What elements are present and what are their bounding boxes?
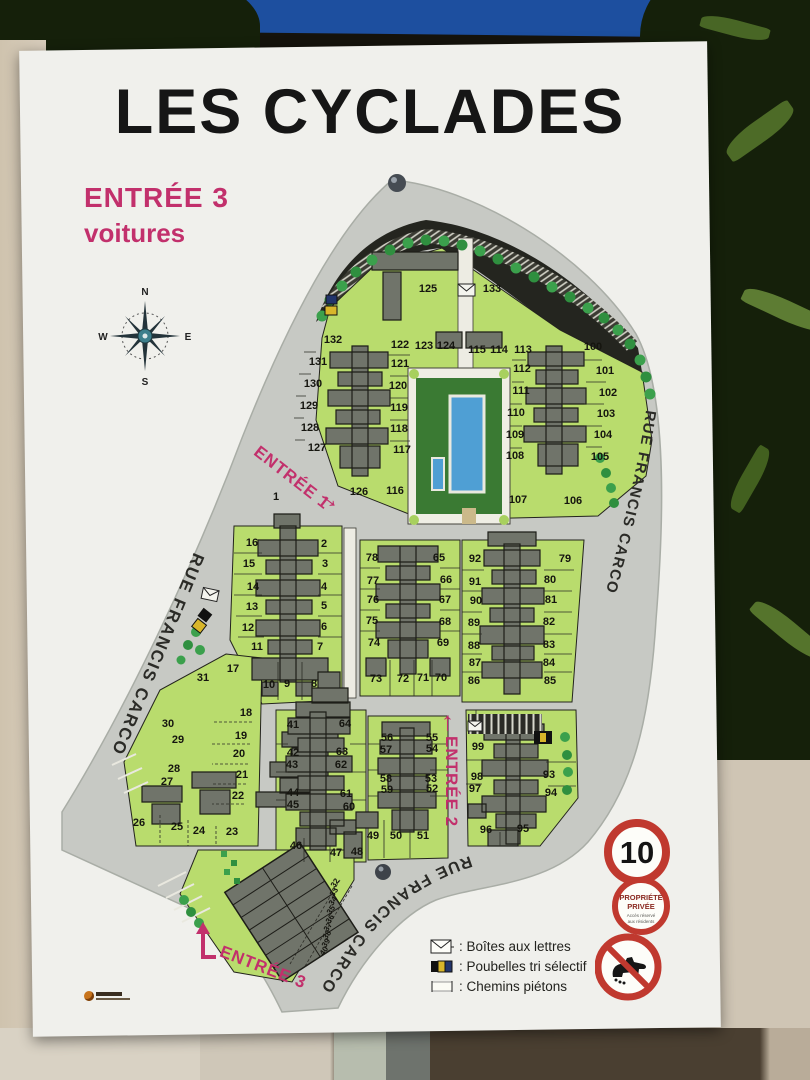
no-dog-fouling-sign: [598, 937, 658, 997]
plot-number: 75: [366, 615, 378, 627]
plot-number: 105: [591, 451, 609, 463]
plot-number: 120: [389, 380, 407, 392]
plot-number: 19: [235, 730, 247, 742]
plot-number: 51: [417, 830, 429, 842]
regulatory-signs: 10 PROPRIÉTÉ PRIVÉE Accès réservé aux ré…: [595, 815, 705, 1010]
plot-number: 9: [284, 678, 290, 690]
plot-number: 49: [367, 830, 379, 842]
legend-row-footpaths: : Chemins piétons: [430, 976, 587, 996]
plot-number: 122: [391, 339, 409, 351]
plot-number: 7: [317, 641, 323, 653]
plot-number: 24: [193, 825, 205, 837]
plot-number: 94: [545, 787, 557, 799]
plot-number: 128: [301, 422, 319, 434]
private-line1: PROPRIÉTÉ: [619, 893, 662, 902]
screw: [388, 174, 406, 192]
plot-number: 21: [236, 769, 248, 781]
plot-number: 61: [340, 788, 352, 800]
plot-number: 102: [599, 387, 617, 399]
plot-number: 129: [300, 400, 318, 412]
plot-number: 79: [559, 553, 571, 565]
building-cluster-79-92: [480, 532, 544, 694]
plot-number: 130: [304, 378, 322, 390]
plot-number: 8: [311, 678, 317, 690]
plot-number: 60: [343, 801, 355, 813]
screw-highlight: [391, 177, 397, 183]
speed-limit-sign: 10: [608, 823, 666, 881]
plot-number: 14: [247, 581, 259, 593]
plot-number: 50: [390, 830, 402, 842]
plot-number: 12: [242, 622, 254, 634]
plot-number: 114: [490, 344, 508, 356]
plot-number: 42: [287, 747, 299, 759]
mailbox-icon: [468, 721, 482, 731]
legend-label: : Boîtes aux lettres: [459, 939, 571, 954]
plot-number: 73: [370, 673, 382, 685]
legend-row-mailboxes: : Boîtes aux lettres: [430, 936, 587, 956]
plot-number: 65: [433, 552, 445, 564]
plot-number: 30: [162, 718, 174, 730]
plot-number: 86: [468, 675, 480, 687]
plot-number: 106: [564, 495, 582, 507]
private-property-sign: PROPRIÉTÉ PRIVÉE Accès réservé aux résid…: [615, 880, 667, 932]
plot-number: 68: [439, 616, 451, 628]
plot-number: 95: [517, 823, 529, 835]
plot-number: 26: [133, 817, 145, 829]
entrance-2-label: ENTRÉE 2: [441, 736, 461, 827]
screw-highlight: [379, 867, 384, 872]
plot-number: 41: [287, 719, 299, 731]
plot-number: 121: [391, 358, 409, 370]
plot-number: 23: [226, 826, 238, 838]
private-sub2: aux résidents: [628, 919, 656, 924]
plot-number: 31: [197, 672, 209, 684]
plot-number: 62: [335, 759, 347, 771]
plot-number: 93: [543, 769, 555, 781]
plot-number: 57: [380, 744, 392, 756]
plot-number: 133: [483, 283, 501, 295]
legend-label: : Chemins piétons: [459, 979, 567, 994]
plot-number: 63: [336, 746, 348, 758]
plot-number: 126: [350, 486, 368, 498]
legend-label: : Poubelles tri sélectif: [459, 959, 587, 974]
logo-text-smudge: [96, 998, 130, 1000]
plot-number: 52: [426, 783, 438, 795]
plot-number: 6: [321, 621, 327, 633]
plot-number: 117: [393, 444, 411, 456]
plot-number: 15: [243, 558, 255, 570]
plot-number: 109: [506, 429, 524, 441]
plot-number: 67: [439, 594, 451, 606]
plot-number: 131: [309, 356, 327, 368]
plot-number: 48: [351, 846, 363, 858]
plot-number: 108: [506, 450, 524, 462]
plot-number: 96: [480, 824, 492, 836]
legend-row-bins: : Poubelles tri sélectif: [430, 956, 587, 976]
plot-number: 78: [366, 552, 378, 564]
logo-mark: [84, 991, 94, 1001]
legend: : Boîtes aux lettres : Poubelles tri sél…: [430, 936, 587, 996]
plot-number: 11: [251, 641, 263, 653]
plot-number: 104: [594, 429, 612, 441]
plot-number: 82: [543, 616, 555, 628]
plot-number: 125: [419, 283, 437, 295]
plot-number: 92: [469, 553, 481, 565]
plot-number: 98: [471, 771, 483, 783]
swimming-pool: [450, 396, 484, 492]
plot-number: 88: [468, 640, 480, 652]
plot-number: 59: [381, 784, 393, 796]
mailbox-icon: [458, 284, 475, 296]
mailbox-icon: [430, 939, 454, 954]
plot-number: 29: [172, 734, 184, 746]
recycle-bins-icon: [430, 959, 454, 973]
plot-number: 64: [339, 718, 351, 730]
plot-number: 5: [321, 600, 327, 612]
plot-number: 115: [468, 344, 486, 356]
screw: [375, 864, 391, 880]
plot-number: 90: [470, 595, 482, 607]
plot-number: 44: [287, 787, 299, 799]
plot-number: 71: [417, 672, 429, 684]
plot-number: 113: [514, 344, 532, 356]
plot-number: 25: [171, 821, 183, 833]
plot-number: 43: [286, 759, 298, 771]
plot-number: 85: [544, 675, 556, 687]
plot-number: 99: [472, 741, 484, 753]
plot-number: 123: [415, 340, 433, 352]
plot-number: 27: [161, 776, 173, 788]
plot-number: 103: [597, 408, 615, 420]
plot-number: 16: [246, 537, 258, 549]
plot-number: 69: [437, 637, 449, 649]
plot-number: 54: [426, 743, 438, 755]
recycle-bins-icon: [534, 731, 552, 744]
logo-text-smudge: [96, 992, 122, 996]
plot-number: 91: [469, 576, 481, 588]
plot-number: 107: [509, 494, 527, 506]
private-line2: PRIVÉE: [627, 902, 655, 911]
plot-number: 70: [435, 672, 447, 684]
plot-number: 100: [584, 341, 602, 353]
plot-number: 45: [287, 799, 299, 811]
plot-number: 97: [469, 783, 481, 795]
plot-number: 28: [168, 763, 180, 775]
plot-number: 3: [322, 558, 328, 570]
plot-number: 132: [324, 334, 342, 346]
sign-maker-logo: [84, 988, 144, 1004]
plot-number: 56: [381, 732, 393, 744]
plot-number: 10: [263, 679, 275, 691]
plot-number: 116: [386, 485, 404, 497]
plot-number: 22: [232, 790, 244, 802]
plot-number: 77: [367, 575, 379, 587]
plot-number: 74: [368, 637, 380, 649]
private-sub1: Accès réservé: [627, 913, 656, 918]
plot-number: 101: [596, 365, 614, 377]
plot-number: 80: [544, 574, 556, 586]
plot-number: 89: [468, 617, 480, 629]
plot-number: 127: [308, 442, 326, 454]
entrance-2-arrow-icon: ↑: [441, 706, 454, 737]
footpath-icon: [430, 980, 454, 993]
plot-number: 47: [330, 847, 342, 859]
plot-number: 1: [273, 491, 279, 503]
plot-number: 83: [543, 639, 555, 651]
plot-number: 18: [240, 707, 252, 719]
plot-number: 46: [290, 840, 302, 852]
plot-number: 111: [512, 385, 529, 397]
plot-number: 124: [437, 340, 455, 352]
plot-number: 4: [321, 581, 327, 593]
pool-area: [408, 368, 510, 525]
plot-number: 2: [321, 538, 327, 550]
plot-number: 118: [390, 423, 408, 435]
photo-of-residence-map-sign: LES CYCLADES ENTRÉE 3 voitures N S W E: [0, 0, 810, 1080]
speed-limit-value: 10: [620, 835, 654, 870]
plot-number: 81: [545, 594, 557, 606]
plot-number: 76: [367, 594, 379, 606]
plot-number: 17: [227, 663, 239, 675]
plot-number: 119: [390, 402, 408, 414]
plot-number: 72: [397, 673, 409, 685]
plot-number: 112: [513, 363, 531, 375]
plot-number: 87: [469, 657, 481, 669]
plot-number: 84: [543, 657, 555, 669]
plot-number: 66: [440, 574, 452, 586]
plot-number: 110: [507, 407, 525, 419]
plot-number: 13: [246, 601, 258, 613]
plot-number: 20: [233, 748, 245, 760]
